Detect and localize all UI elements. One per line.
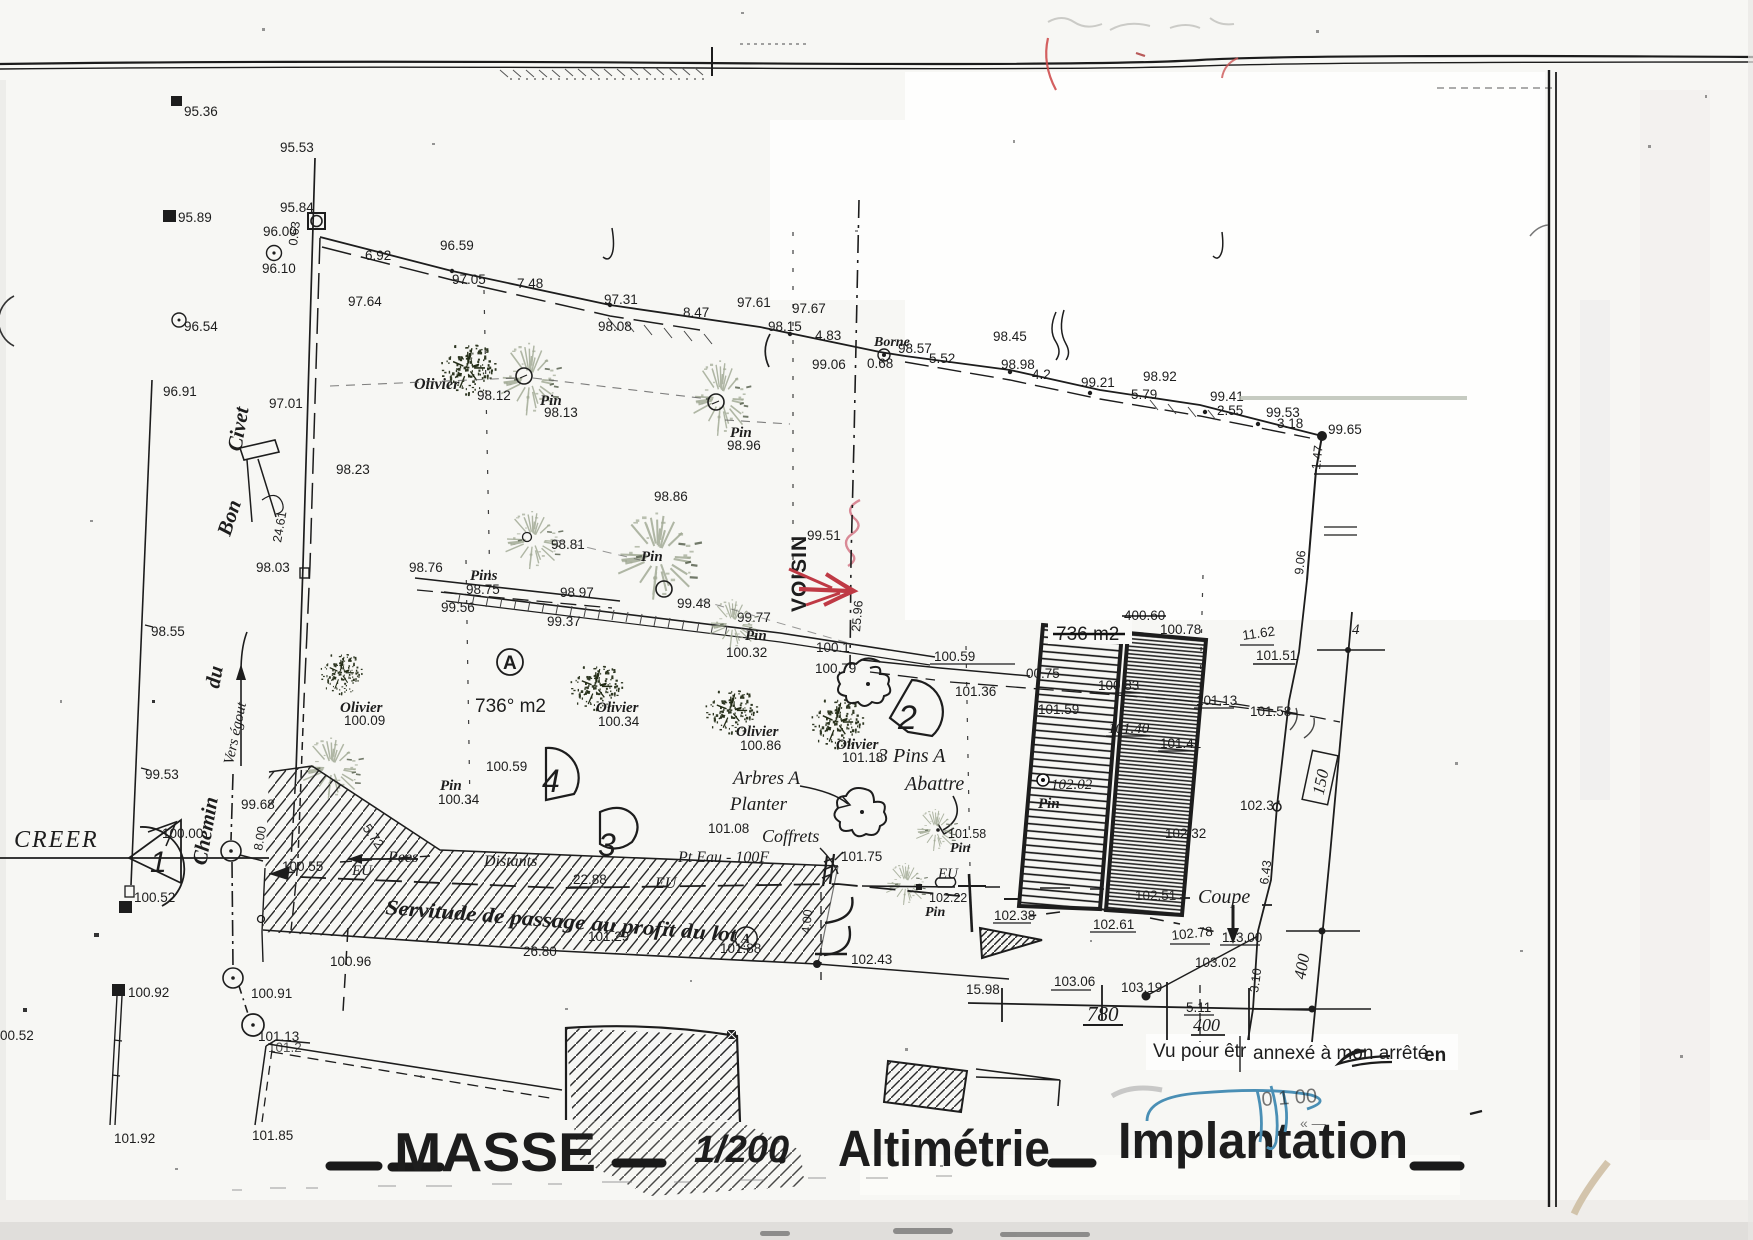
svg-text:102.61: 102.61: [1093, 917, 1134, 932]
svg-text:Abattre: Abattre: [903, 773, 964, 795]
svg-text:3 Pins A: 3 Pins A: [877, 745, 946, 767]
svg-text:100.34: 100.34: [438, 792, 480, 807]
svg-text:99.37: 99.37: [547, 614, 581, 629]
svg-text:99.77: 99.77: [737, 610, 771, 625]
svg-text:98.12: 98.12: [477, 388, 511, 403]
svg-text:95.84: 95.84: [280, 200, 314, 215]
svg-text:8.47: 8.47: [683, 305, 709, 320]
svg-text:CREER: CREER: [14, 827, 99, 853]
svg-text:101.85: 101.85: [252, 1128, 293, 1143]
svg-text:4.2: 4.2: [1032, 367, 1051, 382]
svg-text:Planter: Planter: [729, 794, 788, 815]
svg-text:Coupe: Coupe: [1198, 886, 1250, 908]
svg-text:103.19: 103.19: [1121, 980, 1162, 995]
svg-text:95.89: 95.89: [178, 210, 212, 225]
svg-text:« —: « —: [1300, 1115, 1326, 1131]
svg-text:101.75: 101.75: [841, 849, 882, 864]
svg-text:98.13: 98.13: [544, 405, 578, 420]
svg-text:4: 4: [1352, 622, 1360, 638]
svg-text:100.34: 100.34: [598, 714, 640, 729]
svg-text:400: 400: [1193, 1015, 1220, 1035]
svg-text:15.98: 15.98: [966, 982, 1000, 997]
svg-text:EU: EU: [654, 875, 678, 892]
svg-text:2.55: 2.55: [1217, 403, 1243, 418]
svg-text:MASSE: MASSE: [394, 1121, 596, 1182]
svg-text:97.64: 97.64: [348, 294, 382, 309]
svg-text:102.38: 102.38: [994, 908, 1035, 923]
svg-text:101.40: 101.40: [1108, 721, 1150, 737]
svg-text:4.00: 4.00: [799, 909, 815, 935]
svg-text:5.11: 5.11: [1186, 1000, 1211, 1015]
svg-text:3.18: 3.18: [1277, 416, 1303, 431]
svg-text:101:88: 101:88: [720, 941, 761, 956]
svg-text:98.23: 98.23: [336, 462, 370, 477]
svg-text:100.09: 100.09: [344, 713, 385, 728]
svg-text:100.00: 100.00: [162, 826, 203, 841]
svg-text:0.68: 0.68: [867, 356, 893, 371]
svg-text:103.06: 103.06: [1054, 974, 1095, 989]
svg-text:Arbres A: Arbres A: [731, 768, 800, 789]
svg-text:96.54: 96.54: [184, 319, 218, 334]
svg-text:99.48: 99.48: [677, 596, 711, 611]
svg-text:101.08: 101.08: [708, 821, 749, 836]
svg-text:101.92: 101.92: [114, 1131, 155, 1146]
svg-text:98.96: 98.96: [727, 438, 761, 453]
svg-text:2: 2: [897, 699, 917, 737]
svg-text:en: en: [1424, 1045, 1446, 1066]
svg-text:EU: EU: [937, 866, 959, 882]
svg-text:99.06: 99.06: [812, 357, 846, 372]
svg-text:102.43: 102.43: [851, 952, 892, 967]
svg-text:100.59: 100.59: [486, 759, 527, 774]
svg-text:Pin: Pin: [950, 841, 970, 856]
svg-text:98.76: 98.76: [409, 560, 443, 575]
svg-text:97.61: 97.61: [737, 295, 771, 310]
svg-text:Pin: Pin: [745, 628, 767, 644]
svg-text:100.32: 100.32: [726, 645, 767, 660]
svg-text:97.05: 97.05: [452, 272, 486, 287]
svg-text:98.81: 98.81: [551, 537, 585, 552]
svg-text:Implantation: Implantation: [1118, 1112, 1408, 1169]
svg-text:EU: EU: [351, 863, 373, 879]
svg-text:100.55: 100.55: [282, 859, 323, 874]
svg-text:97.67: 97.67: [792, 301, 826, 316]
svg-text:98.45: 98.45: [993, 329, 1027, 344]
svg-text:100.83: 100.83: [1098, 678, 1139, 693]
svg-text:6.92: 6.92: [365, 248, 391, 263]
svg-text:98.98: 98.98: [1001, 357, 1035, 372]
svg-text:Pin: Pin: [925, 905, 945, 920]
svg-text:1/200: 1/200: [694, 1129, 789, 1171]
svg-text:7.48: 7.48: [517, 276, 543, 291]
svg-text:101.51: 101.51: [1256, 648, 1297, 663]
svg-text:26.80: 26.80: [523, 944, 557, 959]
svg-text:100.96: 100.96: [330, 954, 371, 969]
svg-text:22.88: 22.88: [573, 872, 607, 887]
svg-text:00.75: 00.75: [1026, 666, 1060, 681]
svg-text:98.08: 98.08: [598, 319, 632, 334]
svg-text:102.02: 102.02: [1051, 777, 1093, 793]
svg-text:100.92: 100.92: [128, 985, 169, 1000]
svg-text:Pin: Pin: [641, 549, 663, 565]
svg-text:101.29: 101.29: [588, 929, 629, 944]
svg-text:95.36: 95.36: [184, 104, 218, 119]
svg-text:736° m2: 736° m2: [475, 696, 546, 717]
svg-text:99.41: 99.41: [1210, 389, 1244, 404]
svg-text:9.06: 9.06: [1292, 550, 1308, 576]
svg-text:96.10: 96.10: [262, 261, 296, 276]
svg-text:100.91: 100.91: [251, 986, 292, 1001]
svg-text:0 1 00: 0 1 00: [1261, 1085, 1318, 1111]
svg-text:du: du: [200, 664, 227, 690]
svg-text:100.78: 100.78: [1160, 622, 1201, 637]
svg-text:101.58: 101.58: [948, 827, 986, 841]
svg-text:00.52: 00.52: [0, 1028, 34, 1043]
svg-text:95.53: 95.53: [280, 140, 314, 155]
svg-text:Distants: Distants: [483, 853, 537, 870]
svg-text:102.51: 102.51: [1135, 888, 1176, 903]
svg-text:Pin: Pin: [1038, 796, 1060, 812]
svg-text:102.22: 102.22: [929, 891, 967, 905]
svg-text:98.57: 98.57: [898, 341, 932, 356]
svg-text:97.01: 97.01: [269, 396, 303, 411]
svg-text:Altimétrie: Altimétrie: [838, 1120, 1050, 1177]
svg-text:99.51: 99.51: [807, 528, 841, 543]
svg-text:98.97: 98.97: [560, 585, 594, 600]
svg-text:100.86: 100.86: [740, 738, 781, 753]
svg-text:Pt Eau - 100F: Pt Eau - 100F: [677, 849, 769, 866]
svg-text:A: A: [503, 653, 517, 674]
svg-text:98.55: 98.55: [151, 624, 185, 639]
svg-text:5.52: 5.52: [929, 351, 955, 366]
svg-text:101.59: 101.59: [1038, 702, 1079, 717]
svg-text:98.86: 98.86: [654, 489, 688, 504]
svg-text:Coffrets: Coffrets: [762, 826, 819, 846]
svg-text:96.59: 96.59: [440, 238, 474, 253]
svg-text:98.15: 98.15: [768, 319, 802, 334]
svg-text:4: 4: [542, 763, 560, 799]
svg-text:5.79: 5.79: [1131, 387, 1157, 402]
svg-text:Vu pour êtr: Vu pour êtr: [1153, 1041, 1247, 1062]
svg-text:99.65: 99.65: [1328, 422, 1362, 437]
svg-text:780: 780: [1087, 1002, 1119, 1026]
svg-text:0.63: 0.63: [286, 220, 303, 246]
svg-text:4.83: 4.83: [815, 328, 841, 343]
svg-text:1: 1: [150, 846, 167, 879]
svg-text:101.41: 101.41: [1160, 736, 1201, 751]
svg-text:98.92: 98.92: [1143, 369, 1177, 384]
svg-text:100.59: 100.59: [934, 649, 975, 664]
svg-text:96.91: 96.91: [163, 384, 197, 399]
svg-text:103.02: 103.02: [1195, 955, 1236, 970]
svg-text:100.52: 100.52: [134, 890, 175, 905]
svg-text:101.36: 101.36: [955, 684, 996, 699]
svg-text:99.21: 99.21: [1081, 375, 1115, 390]
svg-text:Olivier: Olivier: [414, 376, 460, 393]
svg-text:Pees: Pees: [387, 849, 418, 866]
svg-text:102.32: 102.32: [1165, 826, 1206, 841]
svg-text:98.03: 98.03: [256, 560, 290, 575]
svg-text:25.96: 25.96: [849, 600, 866, 632]
svg-text:99.53: 99.53: [145, 767, 179, 782]
